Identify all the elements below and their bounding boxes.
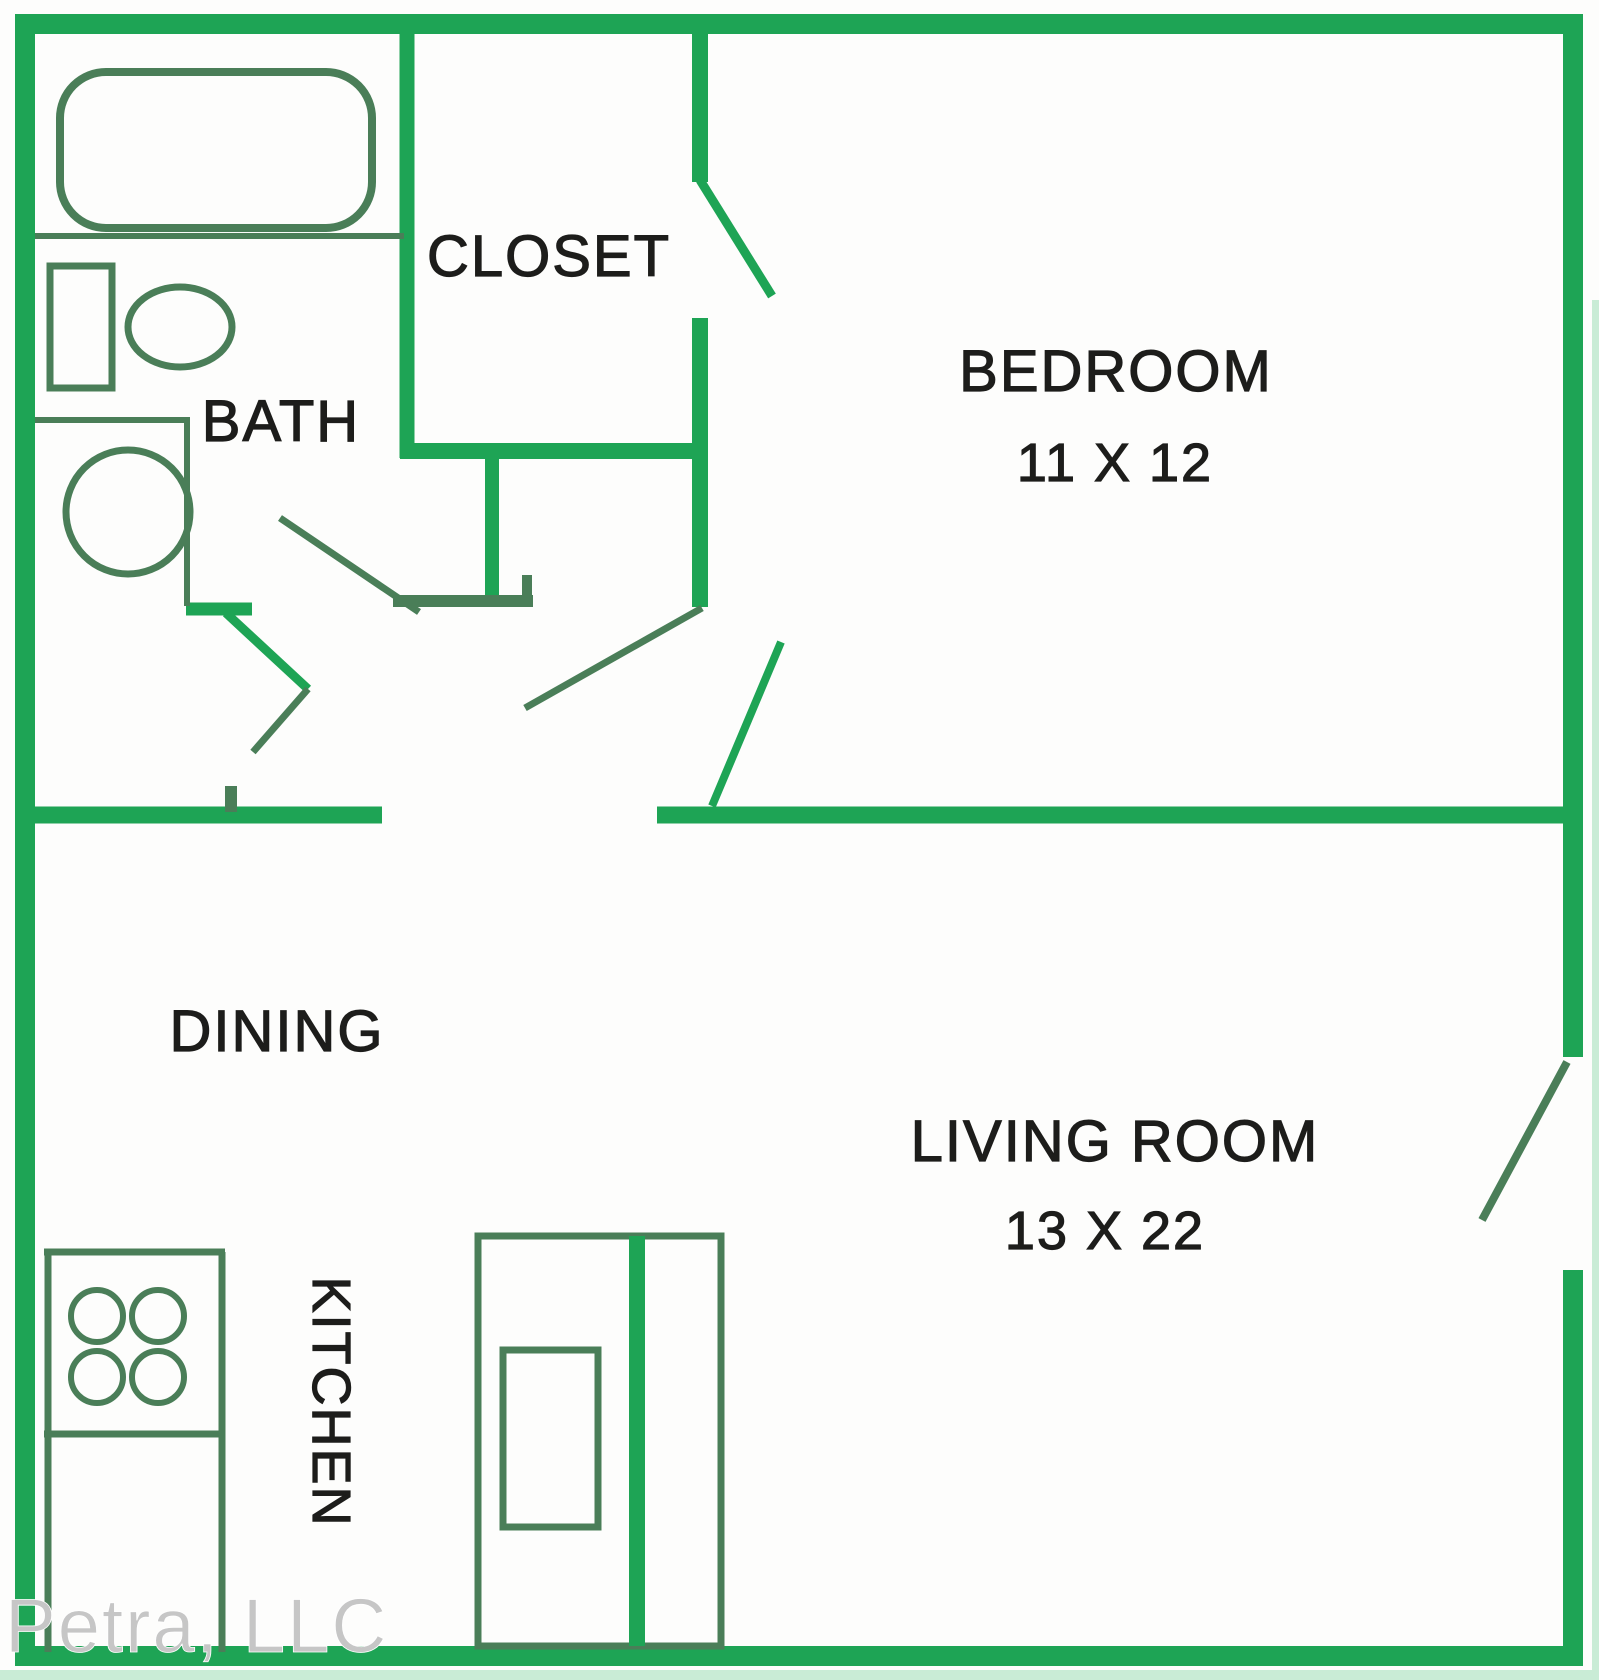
- closet-label: CLOSET: [427, 224, 671, 289]
- bath-door-leaf-upper: [226, 613, 308, 689]
- bottom-edge-strip: [0, 1670, 1599, 1680]
- toilet-icon: [128, 287, 232, 367]
- refrigerator-icon: [478, 1236, 721, 1646]
- bathtub-icon: [60, 72, 372, 228]
- bedroom-label: BEDROOM: [959, 339, 1273, 404]
- doors: [226, 180, 1567, 1220]
- room-labels: CLOSET BATH BEDROOM 11 X 12 DINING LIVIN…: [170, 224, 1320, 1528]
- floor-plan: CLOSET BATH BEDROOM 11 X 12 DINING LIVIN…: [0, 0, 1599, 1680]
- bath-door-leaf-lower: [253, 689, 308, 752]
- stove-burner: [71, 1290, 123, 1342]
- stove-burner: [132, 1351, 184, 1403]
- dining-label: DINING: [170, 999, 385, 1064]
- floor-plan-drawing: CLOSET BATH BEDROOM 11 X 12 DINING LIVIN…: [0, 0, 1599, 1680]
- bedroom-door-leaf: [712, 642, 781, 806]
- closet-door-swing: [700, 180, 772, 296]
- stove-icon: [71, 1290, 184, 1403]
- stove-burner: [71, 1351, 123, 1403]
- living-room-entry-door: [1482, 1062, 1567, 1220]
- washer-icon: [66, 450, 190, 574]
- living-room-dimensions: 13 X 22: [1005, 1201, 1205, 1261]
- right-edge-strip: [1592, 300, 1599, 1680]
- bath-label: BATH: [202, 389, 360, 454]
- bath-door-swing: [280, 518, 419, 612]
- watermark-text: Petra, LLC: [5, 1584, 388, 1669]
- exterior-walls: [15, 14, 1583, 1666]
- refrigerator-handle: [503, 1350, 598, 1527]
- stove-burner: [132, 1290, 184, 1342]
- bedroom-door-swing: [525, 608, 702, 708]
- toilet-tank-icon: [50, 266, 112, 388]
- living-room-label: LIVING ROOM: [911, 1109, 1320, 1174]
- bathroom-fixtures: [35, 72, 404, 606]
- kitchen-label: KITCHEN: [301, 1276, 361, 1527]
- bedroom-dimensions: 11 X 12: [1017, 433, 1213, 493]
